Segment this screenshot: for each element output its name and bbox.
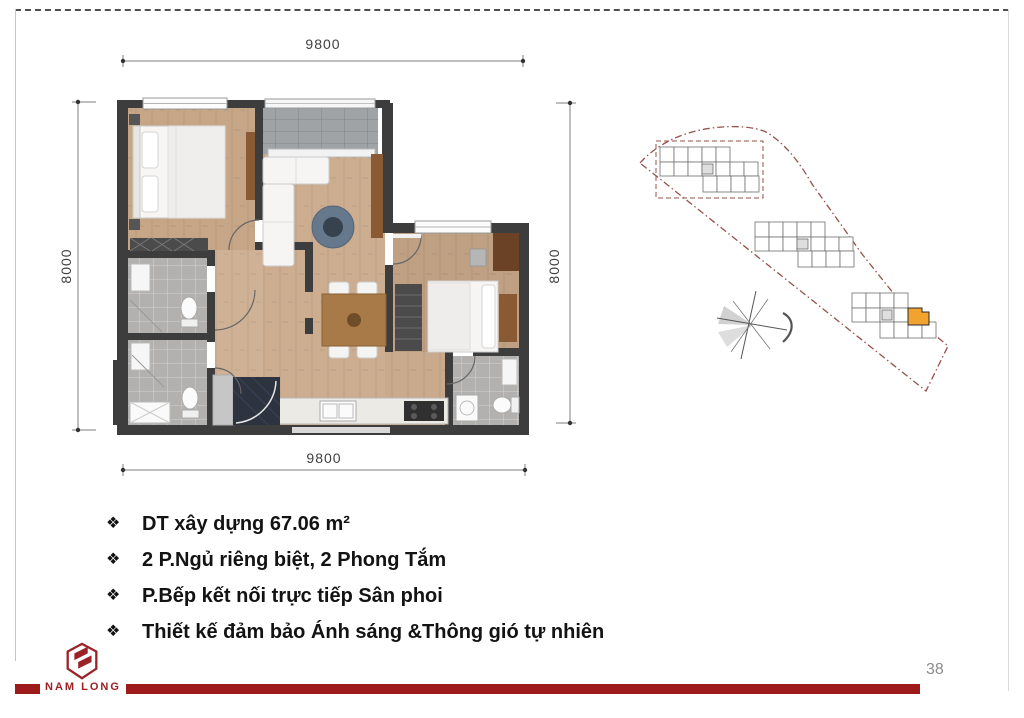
feature-bullet-list: ❖ DT xây dựng 67.06 m² ❖ 2 P.Ngủ riêng b… xyxy=(106,512,726,656)
floor-plan xyxy=(72,55,576,476)
bedroom1-wardrobe xyxy=(130,238,208,251)
sink xyxy=(502,359,517,385)
brand-name: NAM LONG xyxy=(40,681,126,693)
nam-long-cube-logo-icon xyxy=(62,641,102,683)
bullet-item: ❖ 2 P.Ngủ riêng biệt, 2 Phong Tắm xyxy=(106,548,726,572)
dim-label-top: 9800 xyxy=(123,36,523,52)
compass-icon xyxy=(717,291,792,359)
tv-console xyxy=(246,132,255,200)
site-plan xyxy=(640,127,948,391)
dim-label-bottom: 9800 xyxy=(123,450,525,466)
shower-tray xyxy=(130,402,170,423)
dim-label-right: 8000 xyxy=(546,236,562,296)
page-number: 38 xyxy=(926,661,944,679)
bedroom1-window xyxy=(143,98,227,109)
kitchen-window xyxy=(292,427,390,433)
balcony-slider-door xyxy=(268,149,375,157)
bullet-text: P.Bếp kết nối trực tiếp Sân phoi xyxy=(142,584,443,608)
entry-shaft xyxy=(213,375,233,425)
toilet xyxy=(182,387,198,409)
round-rug xyxy=(312,206,354,248)
dim-label-left: 8000 xyxy=(58,236,74,296)
tall-cabinet xyxy=(371,154,383,238)
master-bed xyxy=(133,126,225,218)
building-block-2 xyxy=(755,222,854,267)
footer-bar xyxy=(126,684,920,694)
sink xyxy=(131,264,150,291)
bullet-item: ❖ DT xây dựng 67.06 m² xyxy=(106,512,726,536)
balcony-railing xyxy=(265,99,375,108)
entry-door-area xyxy=(233,377,280,425)
four-diamond-bullet-icon: ❖ xyxy=(106,584,142,608)
slide: 9800 9800 8000 8000 ❖ DT xây dựng 67.06 … xyxy=(0,0,1024,718)
building-blocks xyxy=(660,147,936,338)
building-block-1 xyxy=(660,147,759,192)
toilet xyxy=(181,297,197,319)
dresser xyxy=(499,294,517,342)
washer xyxy=(456,395,478,421)
bullet-item: ❖ P.Bếp kết nối trực tiếp Sân phoi xyxy=(106,584,726,608)
bullet-text: Thiết kế đảm bảo Ánh sáng &Thông gió tự … xyxy=(142,620,604,644)
four-diamond-bullet-icon: ❖ xyxy=(106,620,142,644)
four-diamond-bullet-icon: ❖ xyxy=(106,512,142,536)
highlighted-unit xyxy=(908,308,929,325)
footer-accent-block xyxy=(15,684,40,694)
toilet xyxy=(493,397,511,413)
cooktop xyxy=(404,401,444,421)
bullet-item: ❖ Thiết kế đảm bảo Ánh sáng &Thông gió t… xyxy=(106,620,726,644)
closet xyxy=(493,233,519,271)
nightstand xyxy=(129,114,140,125)
ac-unit xyxy=(470,249,486,266)
nightstand xyxy=(129,219,140,230)
bed2 xyxy=(428,281,498,352)
bedroom2-wardrobe xyxy=(395,284,422,351)
kitchen-counter xyxy=(278,398,448,424)
four-diamond-bullet-icon: ❖ xyxy=(106,548,142,572)
bullet-text: 2 P.Ngủ riêng biệt, 2 Phong Tắm xyxy=(142,548,446,572)
bullet-text: DT xây dựng 67.06 m² xyxy=(142,512,350,536)
bedroom2-window xyxy=(415,221,491,233)
